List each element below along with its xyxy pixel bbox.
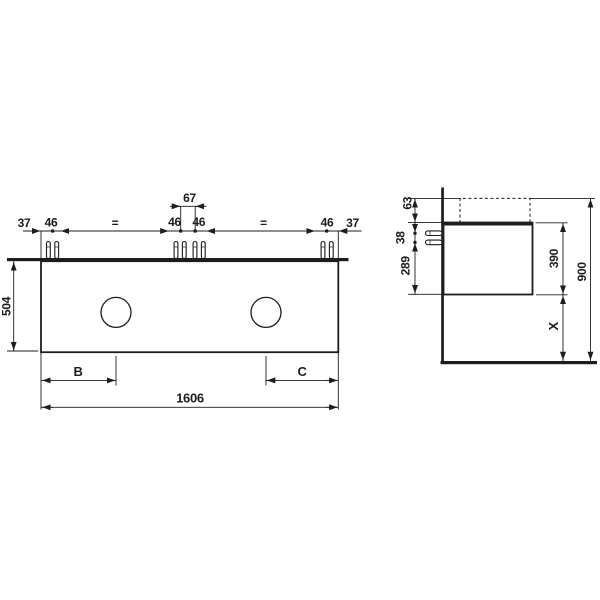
dim-screwpair-center-left-label: 46 <box>168 215 181 229</box>
mounting-screws-front <box>47 242 334 259</box>
screw-icon <box>182 242 186 259</box>
cabinet-side <box>444 223 533 295</box>
dim-lower-clearance-label: 289 <box>399 256 413 276</box>
dimension-basin-right: C <box>266 356 338 386</box>
dim-basin-left-label: B <box>73 364 82 379</box>
dimension-total-width: 1606 <box>41 352 338 409</box>
dim-distance-below-label: X <box>546 321 561 330</box>
mounting-screws-side <box>426 231 443 245</box>
dimension-390-x: 390 X <box>536 223 568 361</box>
dim-cabinet-height-label: 504 <box>0 296 13 316</box>
dim-screw-spacing-label: 38 <box>394 231 408 244</box>
equal-left-label: = <box>112 216 119 230</box>
technical-drawing-canvas: 37 46 = 46 46 = 46 37 67 504 <box>0 0 600 600</box>
dim-mounting-height-label: 900 <box>575 262 589 282</box>
dim-screwpair-center-right-label: 46 <box>192 215 205 229</box>
dim-cabinet-depth-height-label: 390 <box>547 248 561 268</box>
dimension-left-chain: 63 38 289 <box>394 196 462 294</box>
dimension-top-chain: 37 46 = 46 46 = 46 37 <box>18 215 362 258</box>
countertop-side <box>444 223 533 226</box>
screw-icon <box>47 242 51 259</box>
dim-offset-right-label: 37 <box>346 216 359 230</box>
equal-right-label: = <box>260 216 267 230</box>
screw-icon <box>193 242 197 259</box>
dim-top-clearance-label: 63 <box>401 196 415 209</box>
dim-basin-right-label: C <box>297 364 307 379</box>
screw-icon <box>321 242 325 259</box>
dim-screwpair-left-label: 46 <box>45 216 58 230</box>
dim-offset-left-label: 37 <box>18 216 31 230</box>
basin-hole-right <box>251 297 281 327</box>
dim-faucet-spacing-label: 67 <box>183 191 196 205</box>
front-view: 37 46 = 46 46 = 46 37 67 504 <box>0 191 362 410</box>
dimension-cabinet-height: 504 <box>0 261 38 351</box>
screw-icon <box>174 242 178 259</box>
cabinet-front <box>41 261 338 352</box>
screw-icon <box>329 242 333 259</box>
basin-hole-left <box>101 297 131 327</box>
dimension-basin-left: B <box>41 356 116 386</box>
washbasin-dashed-outline <box>460 198 530 223</box>
screw-icon <box>426 240 443 245</box>
floor-line <box>441 361 598 364</box>
screw-icon <box>55 242 59 259</box>
dim-screwpair-right-label: 46 <box>321 216 334 230</box>
dim-total-width-label: 1606 <box>176 390 204 405</box>
screw-icon <box>426 231 443 236</box>
drawing-page: 37 46 = 46 46 = 46 37 67 504 <box>0 0 600 600</box>
side-view: 63 38 289 390 X 900 <box>394 188 598 365</box>
screw-icon <box>201 242 205 259</box>
